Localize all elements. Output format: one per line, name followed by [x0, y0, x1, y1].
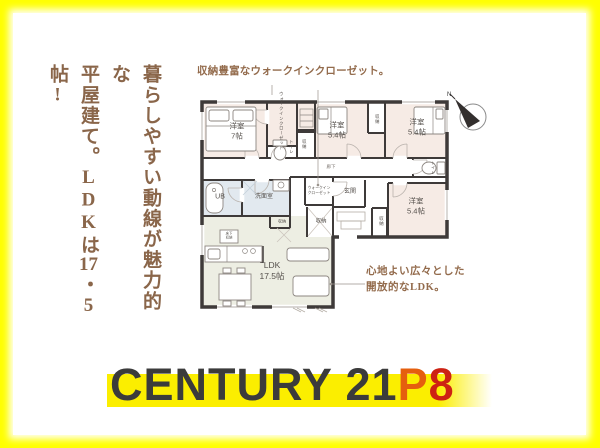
room-label-storage-d: 収納 — [315, 218, 326, 225]
kitchen-counter-icon — [205, 246, 262, 262]
headline-column-2: 平屋建て。LDKは17・5帖! — [42, 64, 104, 328]
headline-column-1: 暮らしやすい動線が魅力的な — [104, 64, 166, 328]
room-label-hallway: 廊下 — [327, 164, 336, 170]
room-label-bedroom54-right: 洋室 5.4帖 — [408, 117, 426, 137]
compass-north-label: N — [447, 92, 451, 98]
room-label-bedroom54-mid: 洋室 5.4帖 — [328, 120, 346, 140]
room-label-toilet-left: トイレ — [289, 140, 294, 155]
century21-logo: CENTURY 21P8 — [110, 359, 455, 411]
room-label-ldk: LDK 17.5帖 — [259, 260, 284, 282]
room-label-storage-a: 収納 — [302, 139, 307, 149]
logo-suffix-p: P — [398, 359, 429, 410]
room-label-ub: UB — [215, 192, 225, 201]
room-label-wic-top: ウォークインクローゼット — [279, 92, 284, 151]
room-label-entrance: 玄関 — [344, 189, 356, 197]
room-label-bedroom7: 洋室 7帖 — [230, 121, 245, 141]
room-label-washroom: 洗面室 — [255, 194, 273, 202]
dining-table-icon — [219, 268, 251, 306]
room-label-toilet-right: トイレ — [431, 161, 435, 175]
room-label-bedroom54-bottom: 洋室 5.4帖 — [407, 196, 425, 216]
room-label-storage-c: 収納 — [278, 218, 286, 223]
room-label-storage-b: 収納 — [375, 114, 380, 124]
room-label-wic-entry: ウォークイン クローゼット — [308, 186, 331, 196]
logo-suffix-8: 8 — [429, 359, 455, 410]
logo-brand-text: CENTURY 21 — [110, 359, 398, 410]
flyer-page: { "colors": { "border_yellow": "#ffff00"… — [0, 0, 600, 448]
compass-icon: N — [447, 92, 486, 130]
vertical-headline: 暮らしやすい動線が魅力的な 平屋建て。LDKは17・5帖! — [102, 64, 166, 328]
room-label-underfloor: 床下 収納 — [226, 232, 233, 241]
room-label-storage-e: 収納 — [379, 216, 384, 226]
